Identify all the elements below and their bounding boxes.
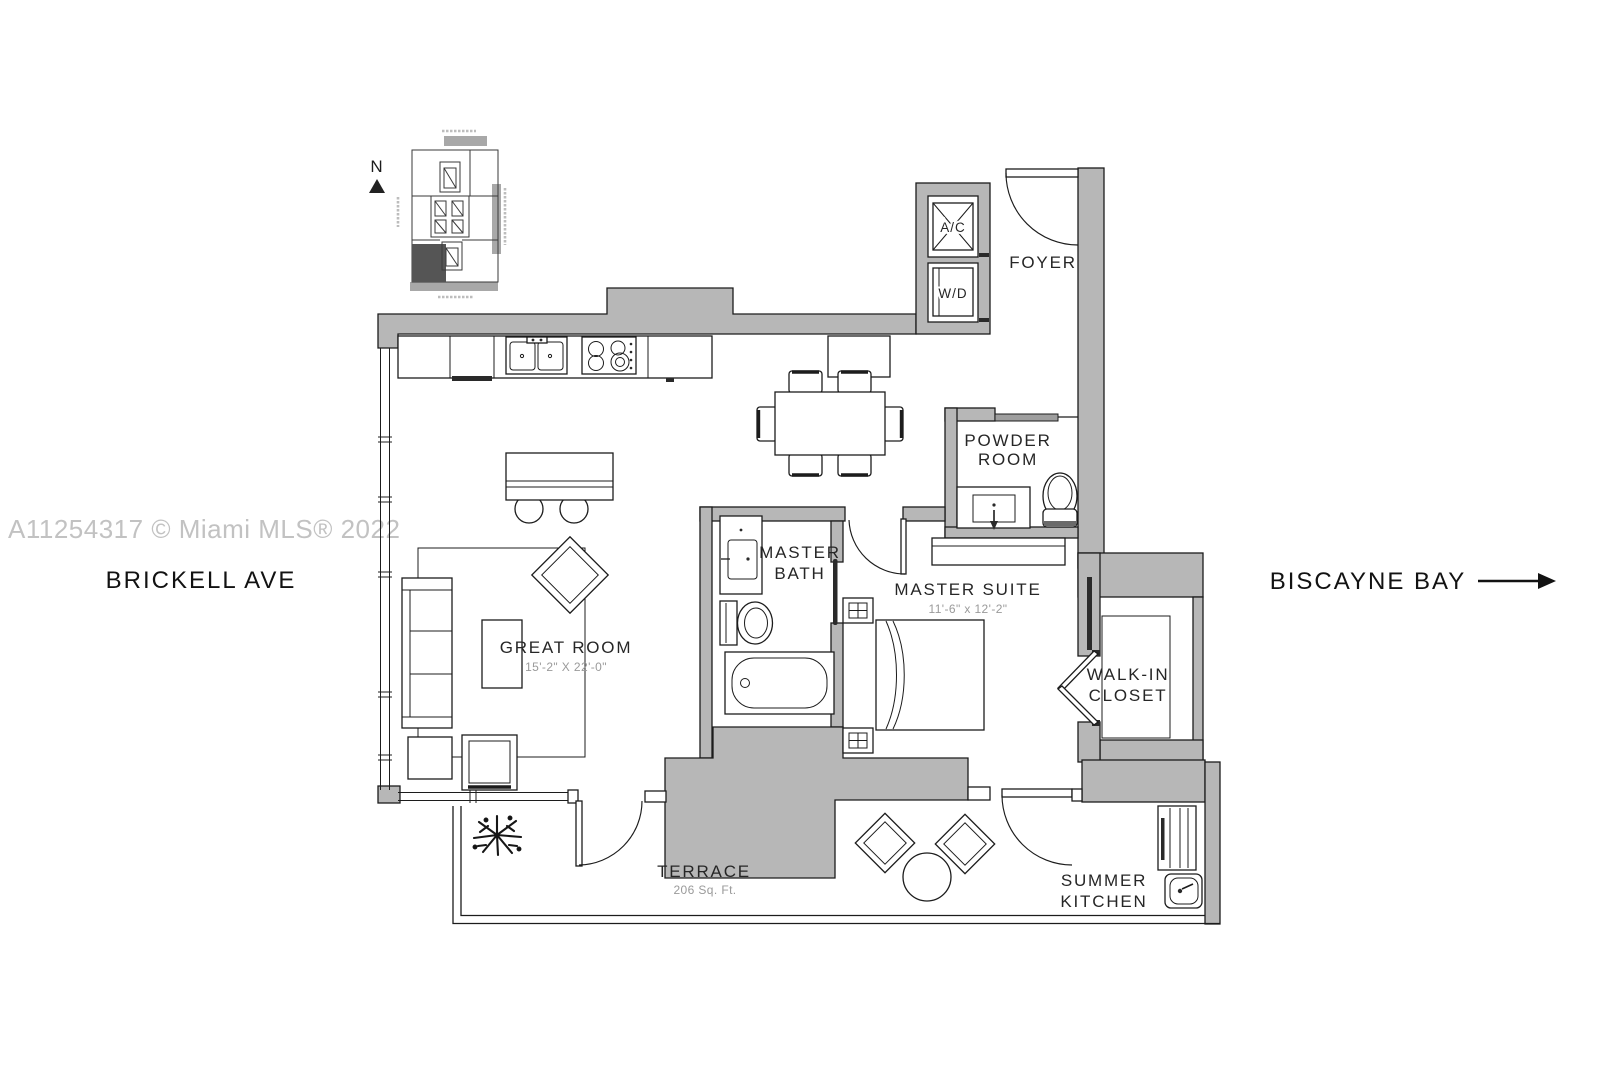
master-suite-dims: 11'-6" x 12'-2" [929,602,1008,616]
key-plan-unit-highlight [412,244,446,282]
summer-kitchen-fixtures [1158,806,1202,908]
powder-room-label-line1: POWDER [964,431,1051,450]
summer-kitchen-label-line2: KITCHEN [1060,892,1147,911]
nightstand [843,598,873,623]
mls-watermark: A11254317 © Miami MLS® 2022 [8,514,400,544]
cooktop [582,337,636,374]
street-label-brickell: BRICKELL AVE [106,567,297,594]
master-suite-label: MASTER SUITE [894,580,1041,599]
floor-plan-page: N A11254317 © Miami MLS® 2022 BRICKELL A… [0,0,1600,1066]
powder-room-label-line2: ROOM [978,450,1038,469]
master-bath-label-line1: MASTER [759,543,841,562]
great-room-dims: 15'-2" X 22'-0" [525,660,607,674]
foyer-label: FOYER [1009,253,1077,272]
nightstand [843,728,873,753]
lounge-chair [462,735,517,790]
side-table [408,737,452,779]
great-room-label: GREAT ROOM [500,638,633,657]
powder-vanity [957,487,1030,530]
terrace-table [903,853,951,901]
bath-vanity [720,516,762,594]
floor-plan-drawing: N A11254317 © Miami MLS® 2022 BRICKELL A… [0,0,1600,1066]
street-label-biscayne: BISCAYNE BAY [1270,568,1467,595]
grill [1158,806,1196,870]
bath-toilet [720,601,773,645]
compass-north-label: N [370,157,383,176]
wd-label: W/D [938,286,967,301]
bed [876,620,984,730]
ac-label: A/C [940,220,966,235]
dresser [932,538,1065,565]
kitchen-sink [506,337,567,374]
walk-in-closet-label-line2: CLOSET [1089,686,1168,705]
bathtub [725,652,834,714]
powder-toilet [1043,473,1077,527]
fridge-handle [666,378,674,382]
terrace-label: TERRACE [657,862,751,881]
summer-kitchen-label-line1: SUMMER [1061,871,1147,890]
dining-table [775,392,885,455]
master-bath-door [833,559,838,625]
outdoor-sink [1165,874,1202,908]
sofa [402,578,452,728]
terrace-area: 206 Sq. Ft. [673,883,736,897]
master-bath-label-line2: BATH [774,564,825,583]
walk-in-closet-label-line1: WALK-IN [1087,665,1170,684]
